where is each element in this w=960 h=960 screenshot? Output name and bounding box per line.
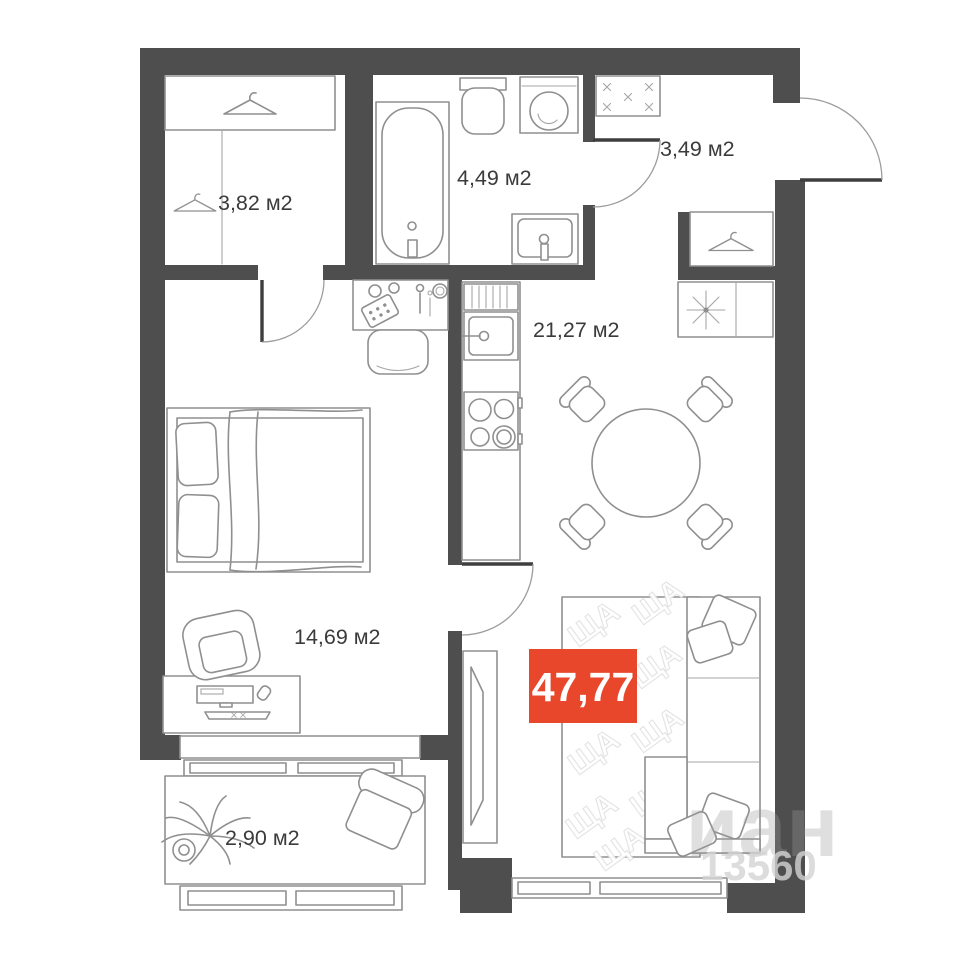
wall-segment xyxy=(678,266,775,280)
pillow xyxy=(175,422,218,486)
doormat xyxy=(596,76,660,116)
bathroom-door xyxy=(593,140,660,207)
total-area-value: 47,77 xyxy=(532,664,635,710)
room-label-kitchen-living: 21,27 м2 xyxy=(533,318,620,342)
tv-stand xyxy=(463,651,497,843)
watermark-number-text: 13560 xyxy=(700,842,817,889)
wall-segment xyxy=(323,265,595,280)
tv xyxy=(471,667,483,825)
wall-segment xyxy=(773,75,800,103)
entrance-door xyxy=(800,98,882,180)
room-bathroom: 4,49 м2 xyxy=(376,77,578,264)
room-label-wardrobe: 3,82 м2 xyxy=(218,191,293,215)
hall-closet xyxy=(690,212,773,266)
desk xyxy=(163,676,300,733)
dining-chair xyxy=(682,374,735,427)
room-wardrobe: 3,82 м2 xyxy=(165,76,335,264)
wall-segment xyxy=(460,858,512,913)
wall-segment xyxy=(583,205,595,280)
room-label-balcony: 2,90 м2 xyxy=(225,826,300,850)
wall-segment xyxy=(140,48,165,760)
room-hallway: 3,49 м2 xyxy=(596,76,773,337)
floor-plan: 3,82 м2 4,49 м2 xyxy=(0,0,960,960)
room-bedroom: 14,69 м2 xyxy=(163,280,448,733)
wall-segment xyxy=(140,265,258,280)
room-label-bedroom: 14,69 м2 xyxy=(294,625,381,649)
bathroom-sink xyxy=(512,214,578,264)
window xyxy=(512,878,727,898)
star-icon xyxy=(687,291,725,329)
kitchen-sink xyxy=(462,312,518,360)
vanity-chair xyxy=(368,330,428,374)
bedroom-door xyxy=(462,564,533,635)
total-area-badge: 47,77 xyxy=(529,649,637,723)
vanity-table xyxy=(353,280,448,330)
double-bed xyxy=(167,408,370,572)
kitchen-counter xyxy=(462,282,522,560)
dining-chair xyxy=(557,499,610,552)
window-sill xyxy=(180,736,420,758)
room-label-bathroom: 4,49 м2 xyxy=(457,166,532,190)
dish-rack xyxy=(464,284,518,310)
wall-segment xyxy=(420,735,462,760)
pillow xyxy=(177,494,219,557)
wall-segment xyxy=(345,75,373,280)
wall-segment xyxy=(583,75,595,142)
wall-segment xyxy=(165,735,181,760)
closet-shelf xyxy=(165,76,335,130)
shoe-cabinet xyxy=(678,282,773,337)
room-balcony: 2,90 м2 xyxy=(162,736,428,910)
bathtub xyxy=(376,102,449,264)
dining-chair xyxy=(557,374,610,427)
wardrobe-door xyxy=(262,280,324,342)
wall-segment xyxy=(448,631,462,890)
hanger-icon xyxy=(174,194,216,211)
site-watermark: иан 13560 xyxy=(686,779,839,889)
floor-plan-canvas: 3,82 м2 4,49 м2 xyxy=(0,0,960,960)
dining-chair xyxy=(682,499,735,552)
room-label-hallway: 3,49 м2 xyxy=(660,137,735,161)
washing-machine xyxy=(520,77,578,133)
wall-segment xyxy=(448,280,462,565)
office-chair xyxy=(180,607,263,683)
stove xyxy=(464,392,522,450)
wall-segment xyxy=(140,48,800,75)
dining-table xyxy=(592,409,700,517)
toilet xyxy=(460,78,506,134)
dining-table-set xyxy=(557,374,734,551)
window xyxy=(180,886,402,910)
